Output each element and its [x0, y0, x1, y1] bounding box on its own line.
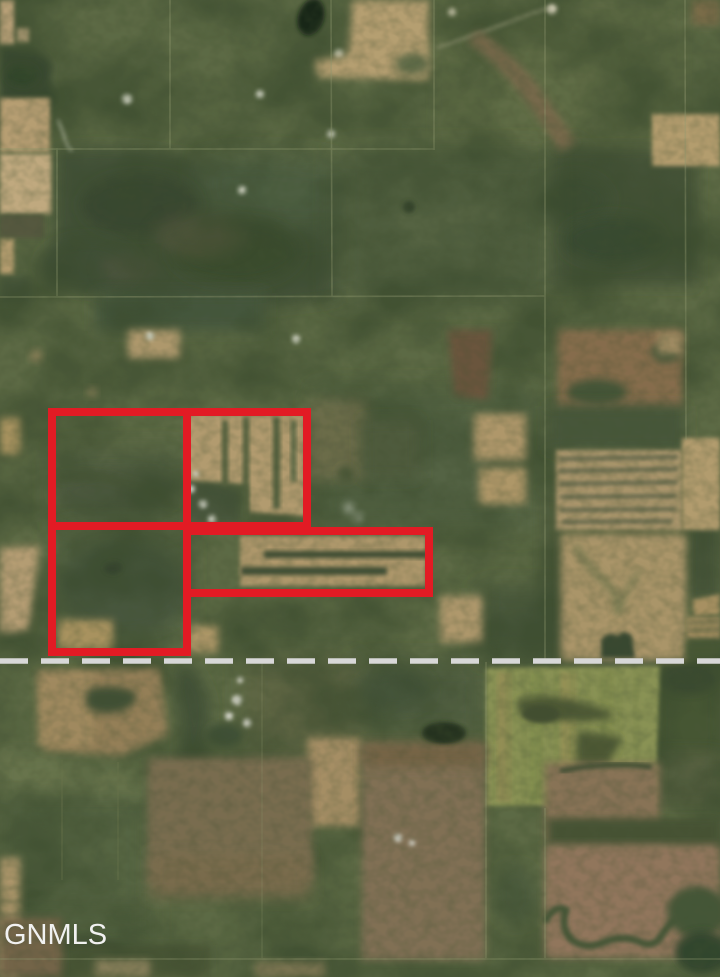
svg-text:GNMLS: GNMLS	[4, 919, 107, 951]
